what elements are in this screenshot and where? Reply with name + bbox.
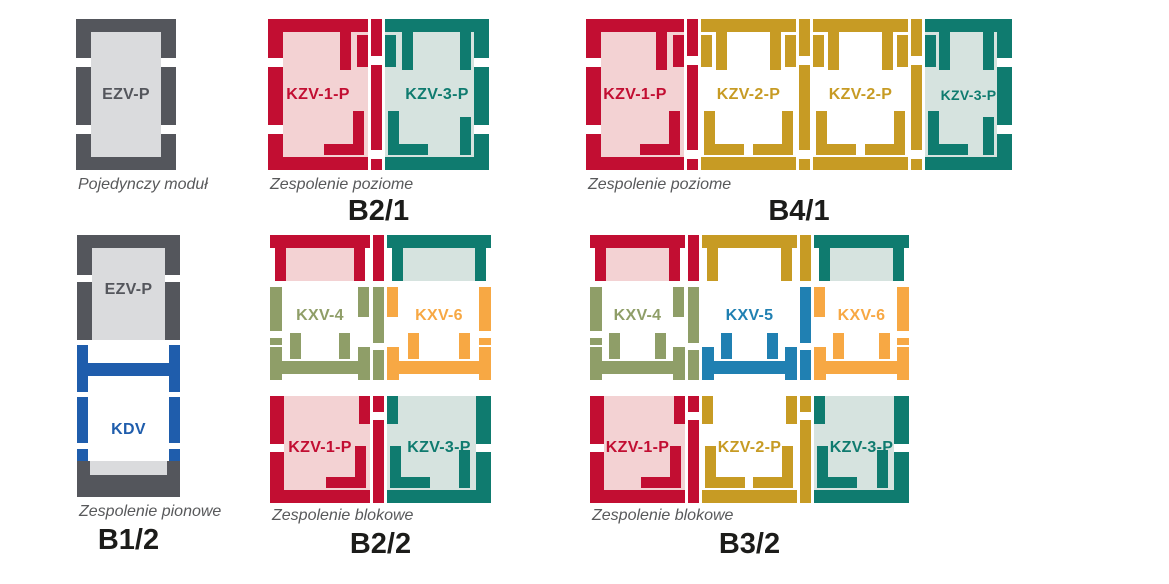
h-connector-stub xyxy=(479,347,491,380)
module-kzv-2-p: KZV-2-P xyxy=(701,19,796,170)
module-label: KZV-2-P xyxy=(813,32,908,157)
panel-b1-2: EZV-P KDV Zespolenie pionowe B1/2 xyxy=(77,235,180,565)
top-bar xyxy=(270,235,370,248)
panel-title: B4/1 xyxy=(586,195,1012,228)
head-stub xyxy=(893,248,904,281)
notch xyxy=(688,412,699,420)
h-connector-bar xyxy=(282,361,358,374)
module-label: KZV-1-P xyxy=(590,406,685,490)
bottom-bar xyxy=(268,157,368,170)
panel-title: B2/2 xyxy=(270,528,491,561)
panel-single-module: EZV-P Pojedynczy moduł xyxy=(76,19,176,219)
module-label: EZV-P xyxy=(76,32,176,157)
h-connector-stub xyxy=(169,345,180,392)
module-kxv-5: KXV-5 xyxy=(702,235,797,380)
coupler-strip xyxy=(373,235,384,281)
notch xyxy=(911,150,922,159)
panel-b2-1: KZV-1-P KZV-3-P Zespolenie poziome B2/1 xyxy=(268,19,489,234)
bottom-bar xyxy=(702,490,797,503)
bottom-bar xyxy=(814,490,909,503)
head-stub xyxy=(669,248,680,281)
module-label: KXV-4 xyxy=(270,291,370,341)
top-bar xyxy=(813,19,908,32)
module-kzv-2-p: KZV-2-P xyxy=(702,396,797,503)
coupler-strip xyxy=(911,19,922,170)
top-bar xyxy=(387,235,491,248)
notch xyxy=(373,343,384,350)
coupler-strip xyxy=(800,235,811,281)
notch xyxy=(373,412,384,420)
notch xyxy=(688,343,699,350)
head-stub xyxy=(819,248,830,281)
h-connector-stub xyxy=(702,347,714,380)
panel-title: B3/2 xyxy=(590,528,909,561)
panel-b4-1: KZV-1-P KZV-2-P KZV-2-P xyxy=(586,19,1012,234)
top-bar xyxy=(590,235,685,248)
head-fill xyxy=(286,248,354,281)
notch xyxy=(800,412,811,420)
module-kzv-2-p: KZV-2-P xyxy=(813,19,908,170)
head-stub xyxy=(354,248,365,281)
h-connector-stub xyxy=(270,347,282,380)
top-bar xyxy=(268,19,368,32)
module-label: KZV-2-P xyxy=(702,406,797,490)
h-connector-stub xyxy=(785,347,797,380)
module-label: KZV-1-P xyxy=(586,32,684,157)
notch xyxy=(799,150,810,159)
head-stub xyxy=(475,248,486,281)
module-kxv-4: KXV-4 xyxy=(590,235,685,380)
h-connector-bar xyxy=(399,361,479,374)
module-kxv-6: KXV-6 xyxy=(387,235,491,380)
panel-caption: Zespolenie blokowe xyxy=(592,507,733,525)
panel-caption: Zespolenie blokowe xyxy=(272,507,413,525)
h-connector-stub xyxy=(590,347,602,380)
head-stub xyxy=(392,248,403,281)
panel-b3-2: KXV-4 KXV-5 xyxy=(590,235,909,565)
panel-caption: Zespolenie poziome xyxy=(588,176,731,194)
module-kzv-3-p: KZV-3-P xyxy=(814,396,909,503)
coupler-strip xyxy=(688,287,699,380)
module-kzv-1-p: KZV-1-P xyxy=(268,19,368,170)
bottom-bar xyxy=(813,157,908,170)
h-connector-stub xyxy=(814,347,826,380)
h-connector-bar xyxy=(826,361,897,374)
module-label: EZV-P xyxy=(77,248,180,332)
panel-b2-2: KXV-4 KXV-6 KZV-1 xyxy=(270,235,491,565)
module-label: KZV-3-P xyxy=(925,32,1012,157)
coupler-strip xyxy=(799,19,810,170)
panel-caption: Zespolenie poziome xyxy=(270,176,413,194)
module-kzv-1-p: KZV-1-P xyxy=(586,19,684,170)
h-connector-stub xyxy=(387,347,399,380)
notch xyxy=(799,56,810,65)
coupler-strip xyxy=(800,287,811,380)
h-connector-bar xyxy=(88,363,169,376)
module-kzv-3-p: KZV-3-P xyxy=(387,396,491,503)
bottom-bar xyxy=(387,490,491,503)
notch xyxy=(911,56,922,65)
module-label: KXV-6 xyxy=(814,291,909,341)
h-connector-stub xyxy=(897,347,909,380)
head-stub xyxy=(781,248,792,281)
notch xyxy=(371,150,382,159)
module-kzv-3-p: KZV-3-P xyxy=(925,19,1012,170)
head-fill xyxy=(403,248,475,281)
head-stub xyxy=(275,248,286,281)
h-connector-bar xyxy=(602,361,673,374)
module-kzv-1-p: KZV-1-P xyxy=(270,396,370,503)
module-kdv: KDV xyxy=(77,397,180,462)
coupler-strip xyxy=(687,19,698,170)
module-ezv-p: EZV-P xyxy=(77,235,180,340)
module-label: KXV-4 xyxy=(590,291,685,341)
flashing-combinations-diagram: EZV-P Pojedynczy moduł KZV-1-P xyxy=(0,0,1169,584)
module-label: KDV xyxy=(77,397,180,462)
notch xyxy=(800,343,811,350)
module-label: KZV-1-P xyxy=(268,32,368,157)
module-kxv-4: KXV-4 xyxy=(270,235,370,380)
head-stub xyxy=(595,248,606,281)
bottom-bar xyxy=(701,157,796,170)
module-label: KXV-5 xyxy=(702,291,797,341)
module-ezv-p: EZV-P xyxy=(76,19,176,170)
head-fill xyxy=(830,248,893,281)
panel-caption: Zespolenie pionowe xyxy=(79,503,221,521)
module-label: KZV-3-P xyxy=(387,406,491,490)
h-connector-stub xyxy=(673,347,685,380)
bottom-bar xyxy=(77,475,180,497)
top-bar xyxy=(814,235,909,248)
head-stub xyxy=(707,248,718,281)
module-label: KZV-3-P xyxy=(385,32,489,157)
module-label: KXV-6 xyxy=(387,291,491,341)
notch xyxy=(371,56,382,65)
panel-caption: Pojedynczy moduł xyxy=(78,176,208,194)
bottom-bar xyxy=(590,490,685,503)
top-bar xyxy=(702,235,797,248)
module-label: KZV-1-P xyxy=(270,406,370,490)
notch xyxy=(687,150,698,159)
h-connector-stub xyxy=(77,345,88,392)
panel-title: B2/1 xyxy=(268,195,489,228)
coupler-strip xyxy=(373,287,384,380)
module-kzv-3-p: KZV-3-P xyxy=(385,19,489,170)
head-fill xyxy=(606,248,669,281)
panel-title: B1/2 xyxy=(77,524,180,557)
coupler-strip xyxy=(371,19,382,170)
module-label: KZV-2-P xyxy=(701,32,796,157)
notch xyxy=(687,56,698,65)
module-label: KZV-3-P xyxy=(814,406,909,490)
top-bar xyxy=(701,19,796,32)
module-kxv-6: KXV-6 xyxy=(814,235,909,380)
module-kzv-1-p: KZV-1-P xyxy=(590,396,685,503)
h-connector-stub xyxy=(358,347,370,380)
coupler-strip xyxy=(688,235,699,281)
bottom-bar xyxy=(270,490,370,503)
h-connector-bar xyxy=(714,361,785,374)
